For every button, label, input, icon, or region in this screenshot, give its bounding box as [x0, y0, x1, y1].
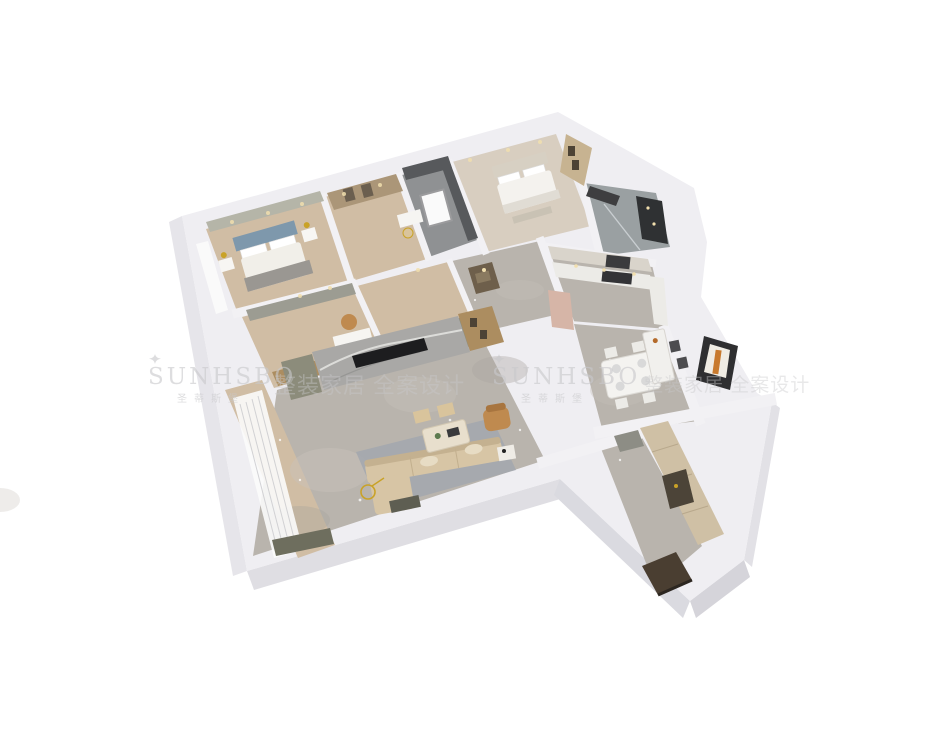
kitchen-light	[574, 264, 578, 268]
shelf-niche	[568, 146, 575, 156]
niche-light	[482, 268, 486, 272]
desk-chair	[341, 314, 357, 330]
bath-light	[652, 222, 655, 225]
shelf-niche	[470, 318, 477, 327]
side-table-decor	[502, 449, 506, 453]
floorplan-render	[0, 0, 950, 733]
vanity-stool	[403, 228, 413, 238]
side-table	[497, 445, 516, 462]
fridge	[548, 290, 574, 330]
shelf-niche	[480, 330, 487, 339]
kitchen-light	[602, 268, 606, 272]
niche-decor	[674, 484, 678, 488]
bath-light	[646, 206, 649, 209]
shelf-niche	[572, 160, 579, 170]
floorplan-stage: SUNHSBO 圣蒂斯堡 整装家居 全案设计 SUNHSBO 圣蒂斯堡 整装家居…	[0, 0, 950, 733]
kitchen-light	[632, 272, 636, 276]
range-hood	[605, 255, 630, 269]
